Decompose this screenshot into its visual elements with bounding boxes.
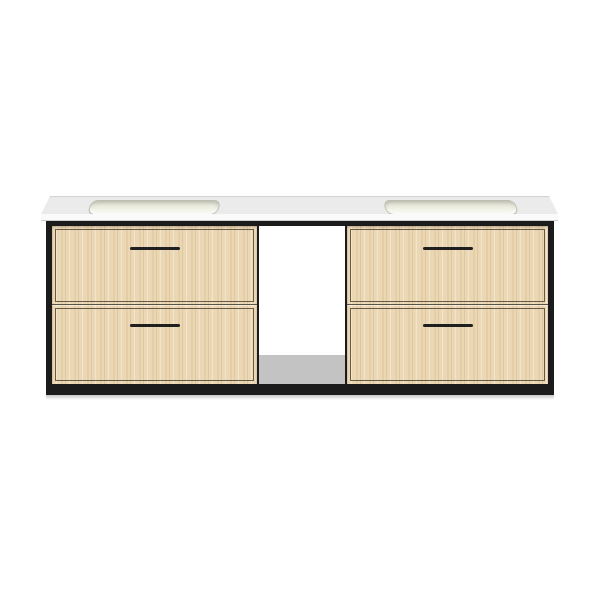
drawer-handle (130, 247, 180, 250)
drawer-handle (423, 324, 473, 327)
cabinet-drop-shadow (46, 395, 554, 400)
product-photo (0, 0, 600, 600)
drawer-unit-left (52, 226, 257, 384)
countertop-front-edge (41, 214, 558, 221)
drawer-right-top (347, 226, 548, 305)
drawer-left-top (52, 226, 257, 305)
drawer-left-bottom (52, 305, 257, 384)
drawer-divider (347, 304, 548, 305)
drawer-front-outline (350, 229, 545, 302)
drawer-unit-right (347, 226, 548, 384)
open-shelf-niche (257, 226, 347, 384)
drawer-front-outline (55, 308, 254, 381)
sink-basin-right (383, 200, 519, 215)
drawer-handle (130, 324, 180, 327)
sink-basin-left (87, 200, 221, 215)
drawer-divider (52, 304, 257, 305)
drawer-front-outline (55, 229, 254, 302)
frame-right-rail (548, 221, 554, 395)
drawer-front-outline (350, 308, 545, 381)
drawer-right-bottom (347, 305, 548, 384)
shelf-floor (259, 355, 345, 384)
drawer-handle (423, 247, 473, 250)
frame-bottom-rail (46, 384, 554, 395)
countertop-surface (41, 196, 558, 214)
